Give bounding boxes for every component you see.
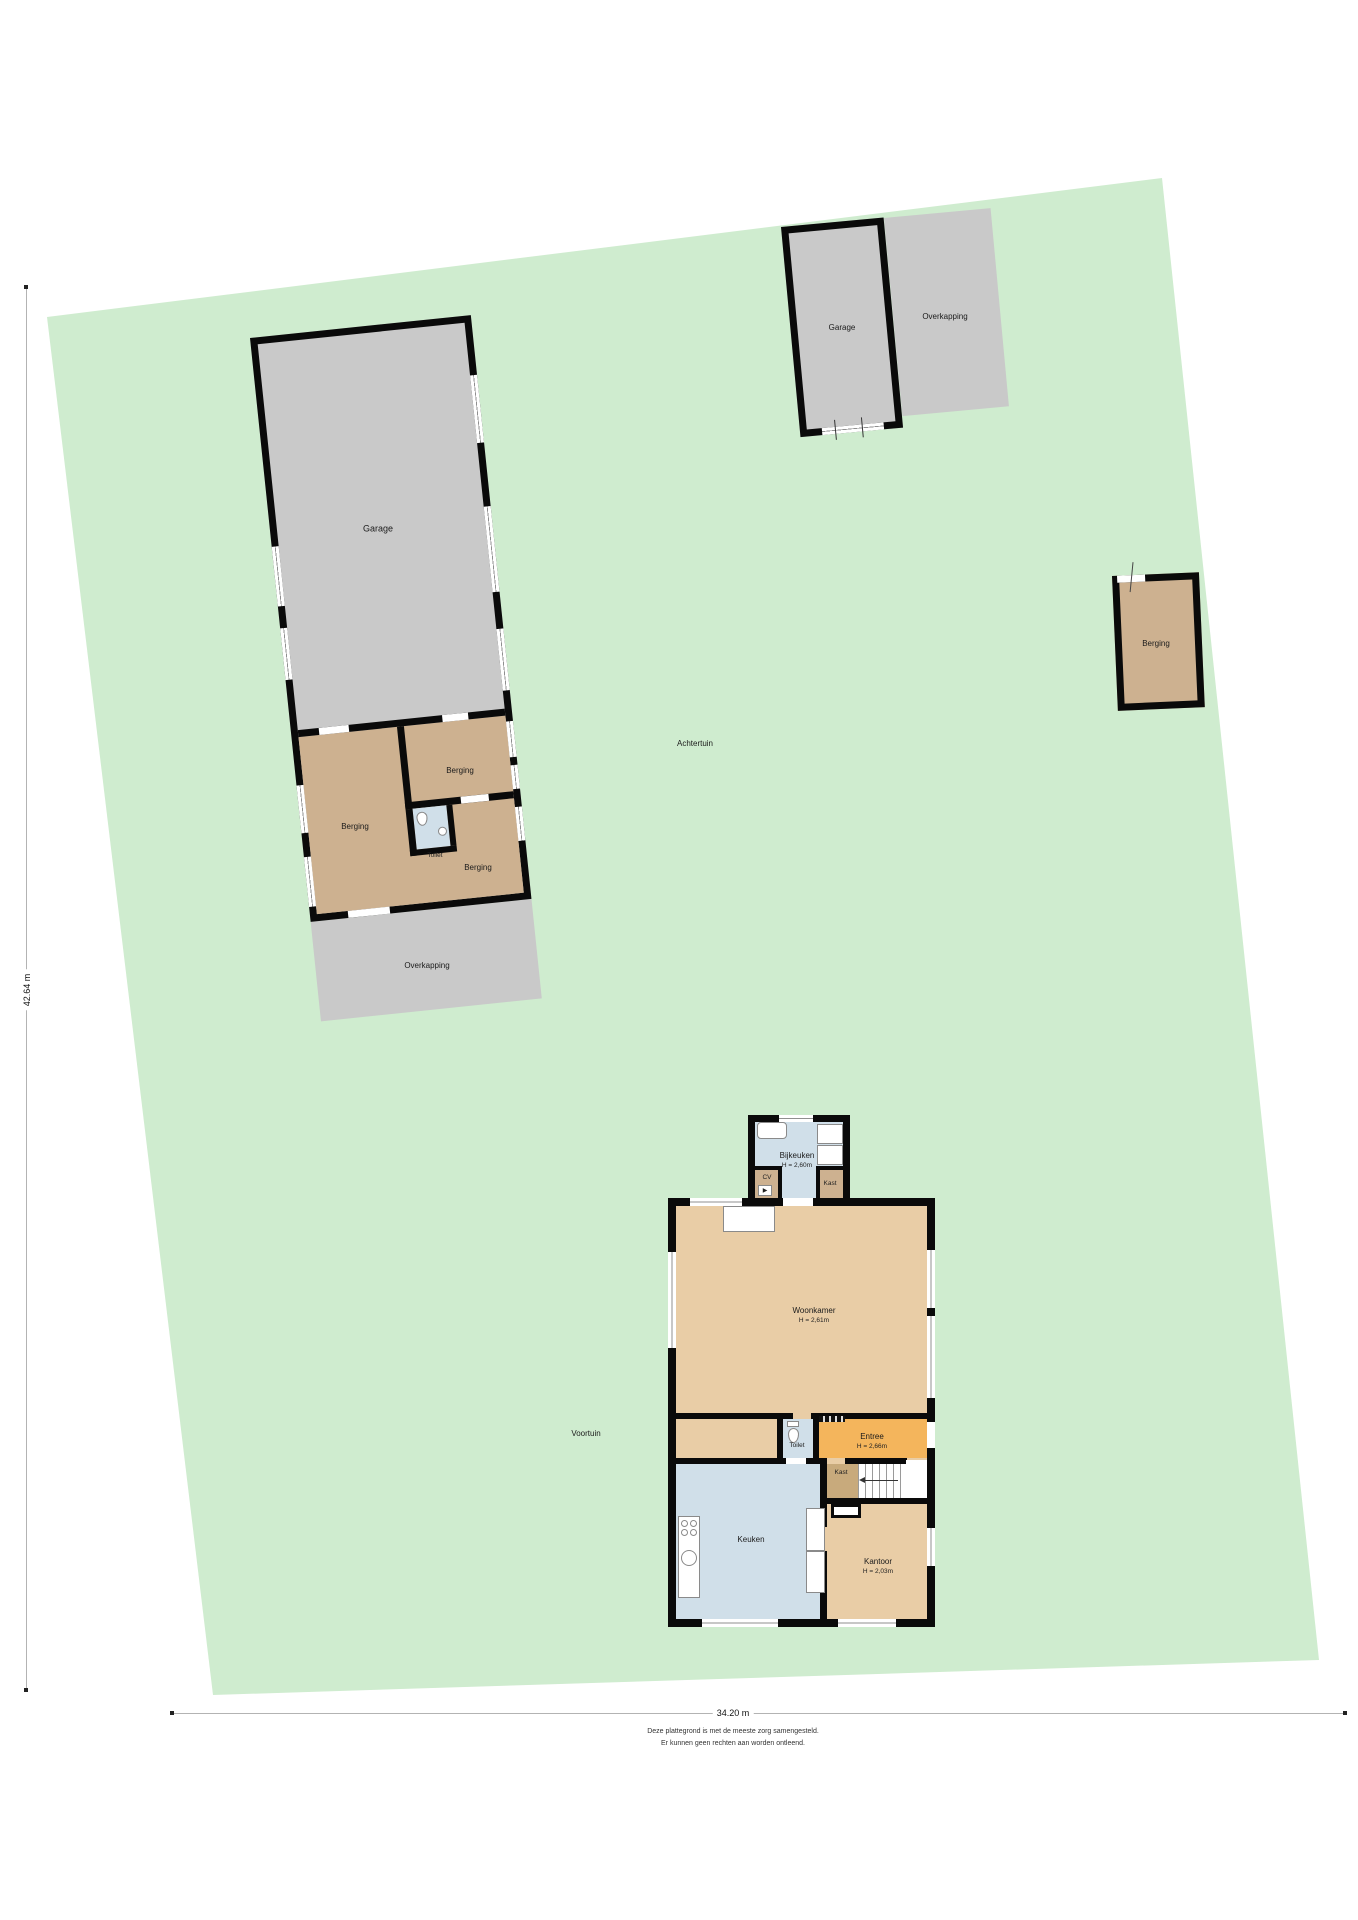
label-entree: Entree — [860, 1433, 884, 1441]
radiator — [819, 1416, 845, 1422]
label-garage-west: Garage — [363, 525, 393, 534]
label-kast-top: Kast — [823, 1181, 836, 1188]
front-door-opening — [927, 1422, 935, 1448]
label-entree-height: H = 2,66m — [857, 1444, 887, 1451]
cabinet — [806, 1551, 825, 1593]
appliance — [817, 1145, 843, 1165]
kantoor-closet — [831, 1504, 861, 1518]
house-main-section — [668, 1198, 935, 1627]
dimension-line-horizontal — [172, 1713, 1345, 1714]
window — [668, 1252, 676, 1348]
window — [690, 1198, 742, 1206]
disclaimer: Deze plattegrond is met de meeste zorg s… — [647, 1726, 819, 1750]
dimension-end — [24, 1688, 28, 1692]
label-berging-top-right: Berging — [446, 767, 474, 775]
label-kantoor: Kantoor — [864, 1558, 892, 1566]
appliance — [817, 1124, 843, 1144]
window — [927, 1316, 935, 1398]
disclaimer-line1: Deze plattegrond is met de meeste zorg s… — [647, 1726, 819, 1738]
label-voortuin: Voortuin — [571, 1430, 600, 1438]
floorplan-canvas: ▶ — [0, 0, 1358, 1920]
door-opening — [783, 1198, 813, 1206]
cabinet — [806, 1508, 825, 1551]
label-kantoor-height: H = 2,03m — [863, 1569, 893, 1576]
label-bijkeuken-height: H = 2,60m — [782, 1163, 812, 1170]
stairs-arrow — [864, 1480, 898, 1481]
label-berging-left: Berging — [341, 823, 369, 831]
stairs-landing — [906, 1460, 927, 1498]
window — [838, 1619, 896, 1627]
cv-boiler: ▶ — [758, 1185, 772, 1196]
dimension-end — [24, 285, 28, 289]
window — [927, 1250, 935, 1308]
dimension-label-vertical: 42.64 m — [21, 970, 33, 1011]
label-overkapping-north: Overkapping — [922, 313, 967, 321]
stairs-arrow-head — [859, 1477, 865, 1483]
garden-parcel — [0, 0, 1358, 1920]
house-top-section: ▶ — [748, 1115, 850, 1205]
dimension-end — [1343, 1711, 1347, 1715]
sink-fixture — [757, 1122, 787, 1139]
dimension-end — [170, 1711, 174, 1715]
wall — [676, 1413, 793, 1419]
window — [779, 1115, 813, 1122]
stove-burner — [690, 1520, 697, 1527]
label-woonkamer-height: H = 2,61m — [799, 1318, 829, 1325]
label-toilet-house: Toilet — [789, 1443, 804, 1450]
stove-burner — [681, 1520, 688, 1527]
dimension-label-horizontal: 34.20 m — [713, 1707, 754, 1719]
label-woonkamer: Woonkamer — [793, 1307, 836, 1315]
stove-burner — [681, 1529, 688, 1536]
label-berging-bottom-right: Berging — [464, 864, 492, 872]
label-cv: CV — [762, 1175, 771, 1182]
label-berging-east: Berging — [1142, 640, 1170, 648]
stove-burner — [690, 1529, 697, 1536]
disclaimer-line2: Er kunnen geen rechten aan worden ontlee… — [647, 1738, 819, 1750]
label-garage-north: Garage — [829, 324, 856, 332]
label-achtertuin: Achtertuin — [677, 740, 713, 748]
label-keuken: Keuken — [737, 1536, 764, 1544]
toilet-fixture — [787, 1421, 799, 1427]
label-overkapping-west: Overkapping — [404, 962, 449, 970]
stairs — [858, 1464, 906, 1498]
label-kast-hall: Kast — [834, 1470, 847, 1477]
kitchen-sink — [681, 1550, 697, 1566]
label-toilet-outbuilding: Toilet — [427, 853, 442, 860]
fireplace-cabinet — [723, 1206, 775, 1232]
window — [927, 1528, 935, 1566]
label-bijkeuken: Bijkeuken — [780, 1152, 815, 1160]
window — [702, 1619, 778, 1627]
